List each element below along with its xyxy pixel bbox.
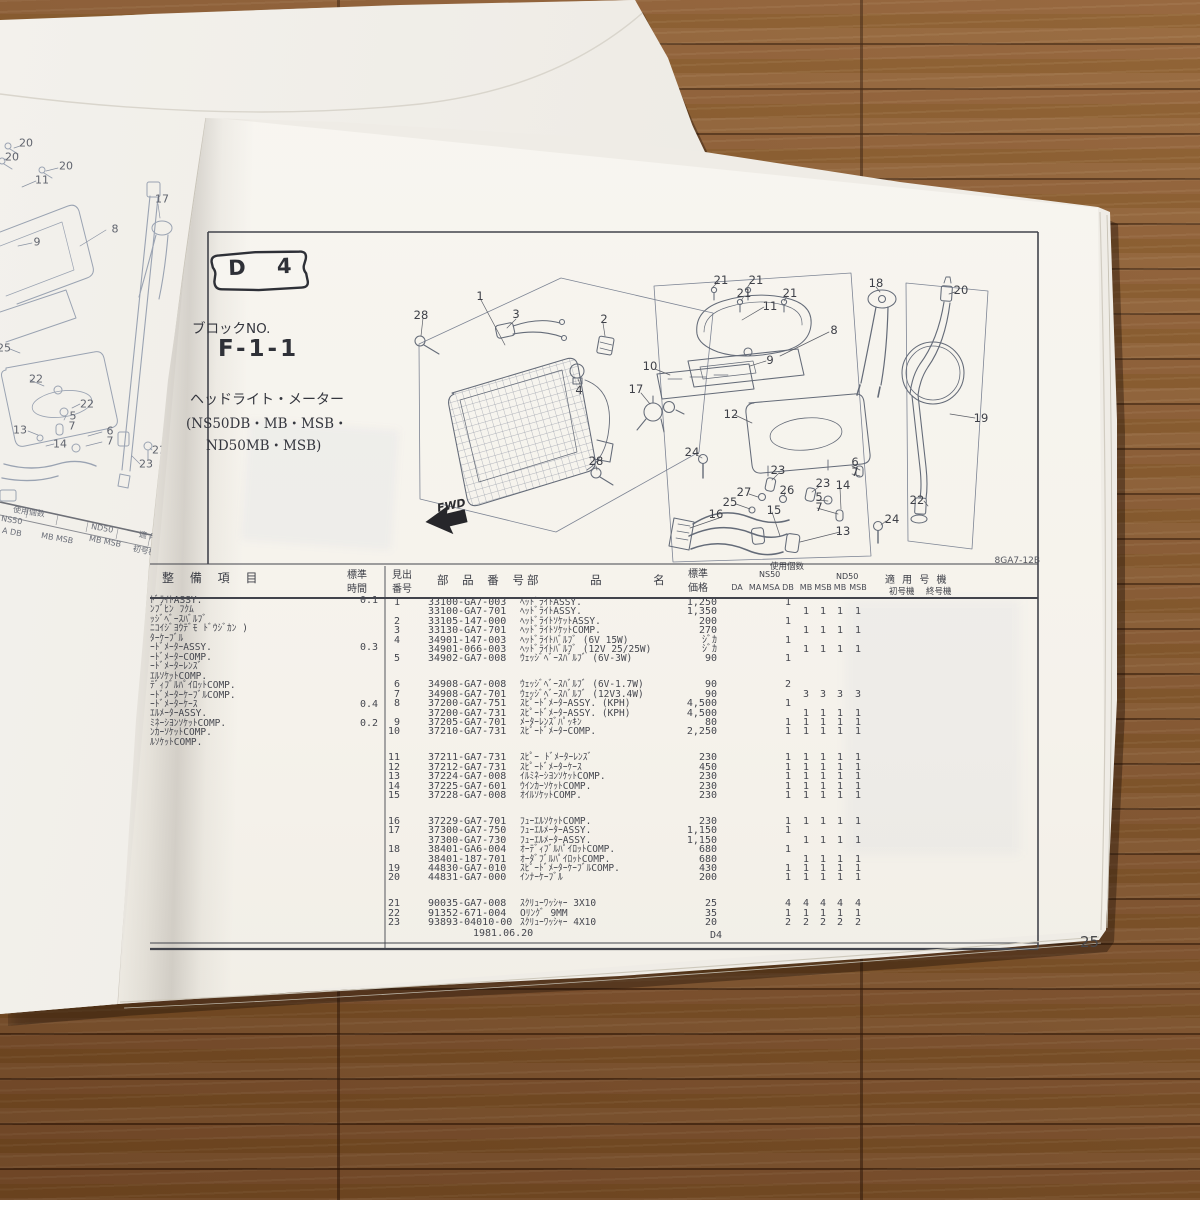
left-page-callout: 25	[0, 342, 11, 355]
diagram-callout: 11	[763, 299, 778, 313]
diagram-callout: 19	[974, 411, 989, 425]
left-page-callout: 20	[19, 137, 33, 150]
diagram-callout: 14	[836, 478, 851, 492]
left-page-callout: 23	[139, 458, 153, 471]
diagram-callout: 24	[885, 512, 900, 526]
diagram-callout: 15	[767, 503, 782, 517]
diagram-callout: 25	[723, 495, 738, 509]
diagram-callout: 21	[749, 273, 764, 287]
left-page-callout: 22	[80, 398, 94, 411]
diagram-callout: 7	[851, 465, 858, 479]
left-page-callout: 7	[107, 435, 114, 448]
diagram-callout: 28	[414, 308, 429, 322]
diagram-callout: 26	[780, 483, 795, 497]
left-page-callout: 11	[35, 174, 49, 187]
diagram-callout: 4	[575, 383, 582, 397]
diagram-callout: 3	[512, 307, 519, 321]
diagram-callout: 1	[476, 289, 483, 303]
left-page-callout: 17	[155, 193, 169, 206]
left-page-callout: 22	[29, 373, 43, 386]
diagram-callout: 23	[771, 463, 786, 477]
left-page-text-fragment: ND50	[90, 522, 114, 535]
left-page-text-fragment: A DB	[1, 526, 22, 538]
diagram-callout: 21	[714, 273, 729, 287]
diagram-callout: 9	[766, 353, 773, 367]
diagram-callout: 10	[643, 359, 658, 373]
diagram-callout: 28	[589, 454, 604, 468]
diagram-callout: 2	[600, 312, 607, 326]
left-page-callout: 9	[34, 236, 41, 249]
diagram-callout: 24	[685, 445, 700, 459]
diagram-callout: 22	[910, 493, 925, 507]
left-page-callout: 20	[59, 160, 73, 173]
left-page-callout: 14	[53, 438, 67, 451]
diagram-callout: 17	[629, 382, 644, 396]
diagram-callout: 18	[869, 276, 884, 290]
left-page-callout: 7	[69, 420, 76, 433]
left-page-text-fragment: MB MSB	[40, 531, 73, 545]
left-page-callout: 13	[13, 424, 27, 437]
diagram-callout: 23	[816, 476, 831, 490]
diagram-callout: 7	[815, 500, 822, 514]
diagram-callout: 12	[724, 407, 739, 421]
left-page-text-fragment: NS50	[1, 514, 23, 526]
left-page-callout: 20	[5, 151, 19, 164]
left-page-text-fragment: MB MSB	[88, 534, 122, 549]
diagram-callout: 8	[830, 323, 837, 337]
diagram-callout: 21	[737, 286, 752, 300]
diagram-callout: 21	[783, 286, 798, 300]
diagram-callout: 20	[954, 283, 969, 297]
diagram-callout: 13	[836, 524, 851, 538]
left-page-callout: 8	[112, 223, 119, 236]
photo-scene: D 4 ブロックNO. F-1-1 ヘッドライト・メーター (NS50DB・MB…	[0, 0, 1200, 1200]
diagram-callout: 27	[737, 485, 752, 499]
diagram-callout: 16	[709, 507, 724, 521]
